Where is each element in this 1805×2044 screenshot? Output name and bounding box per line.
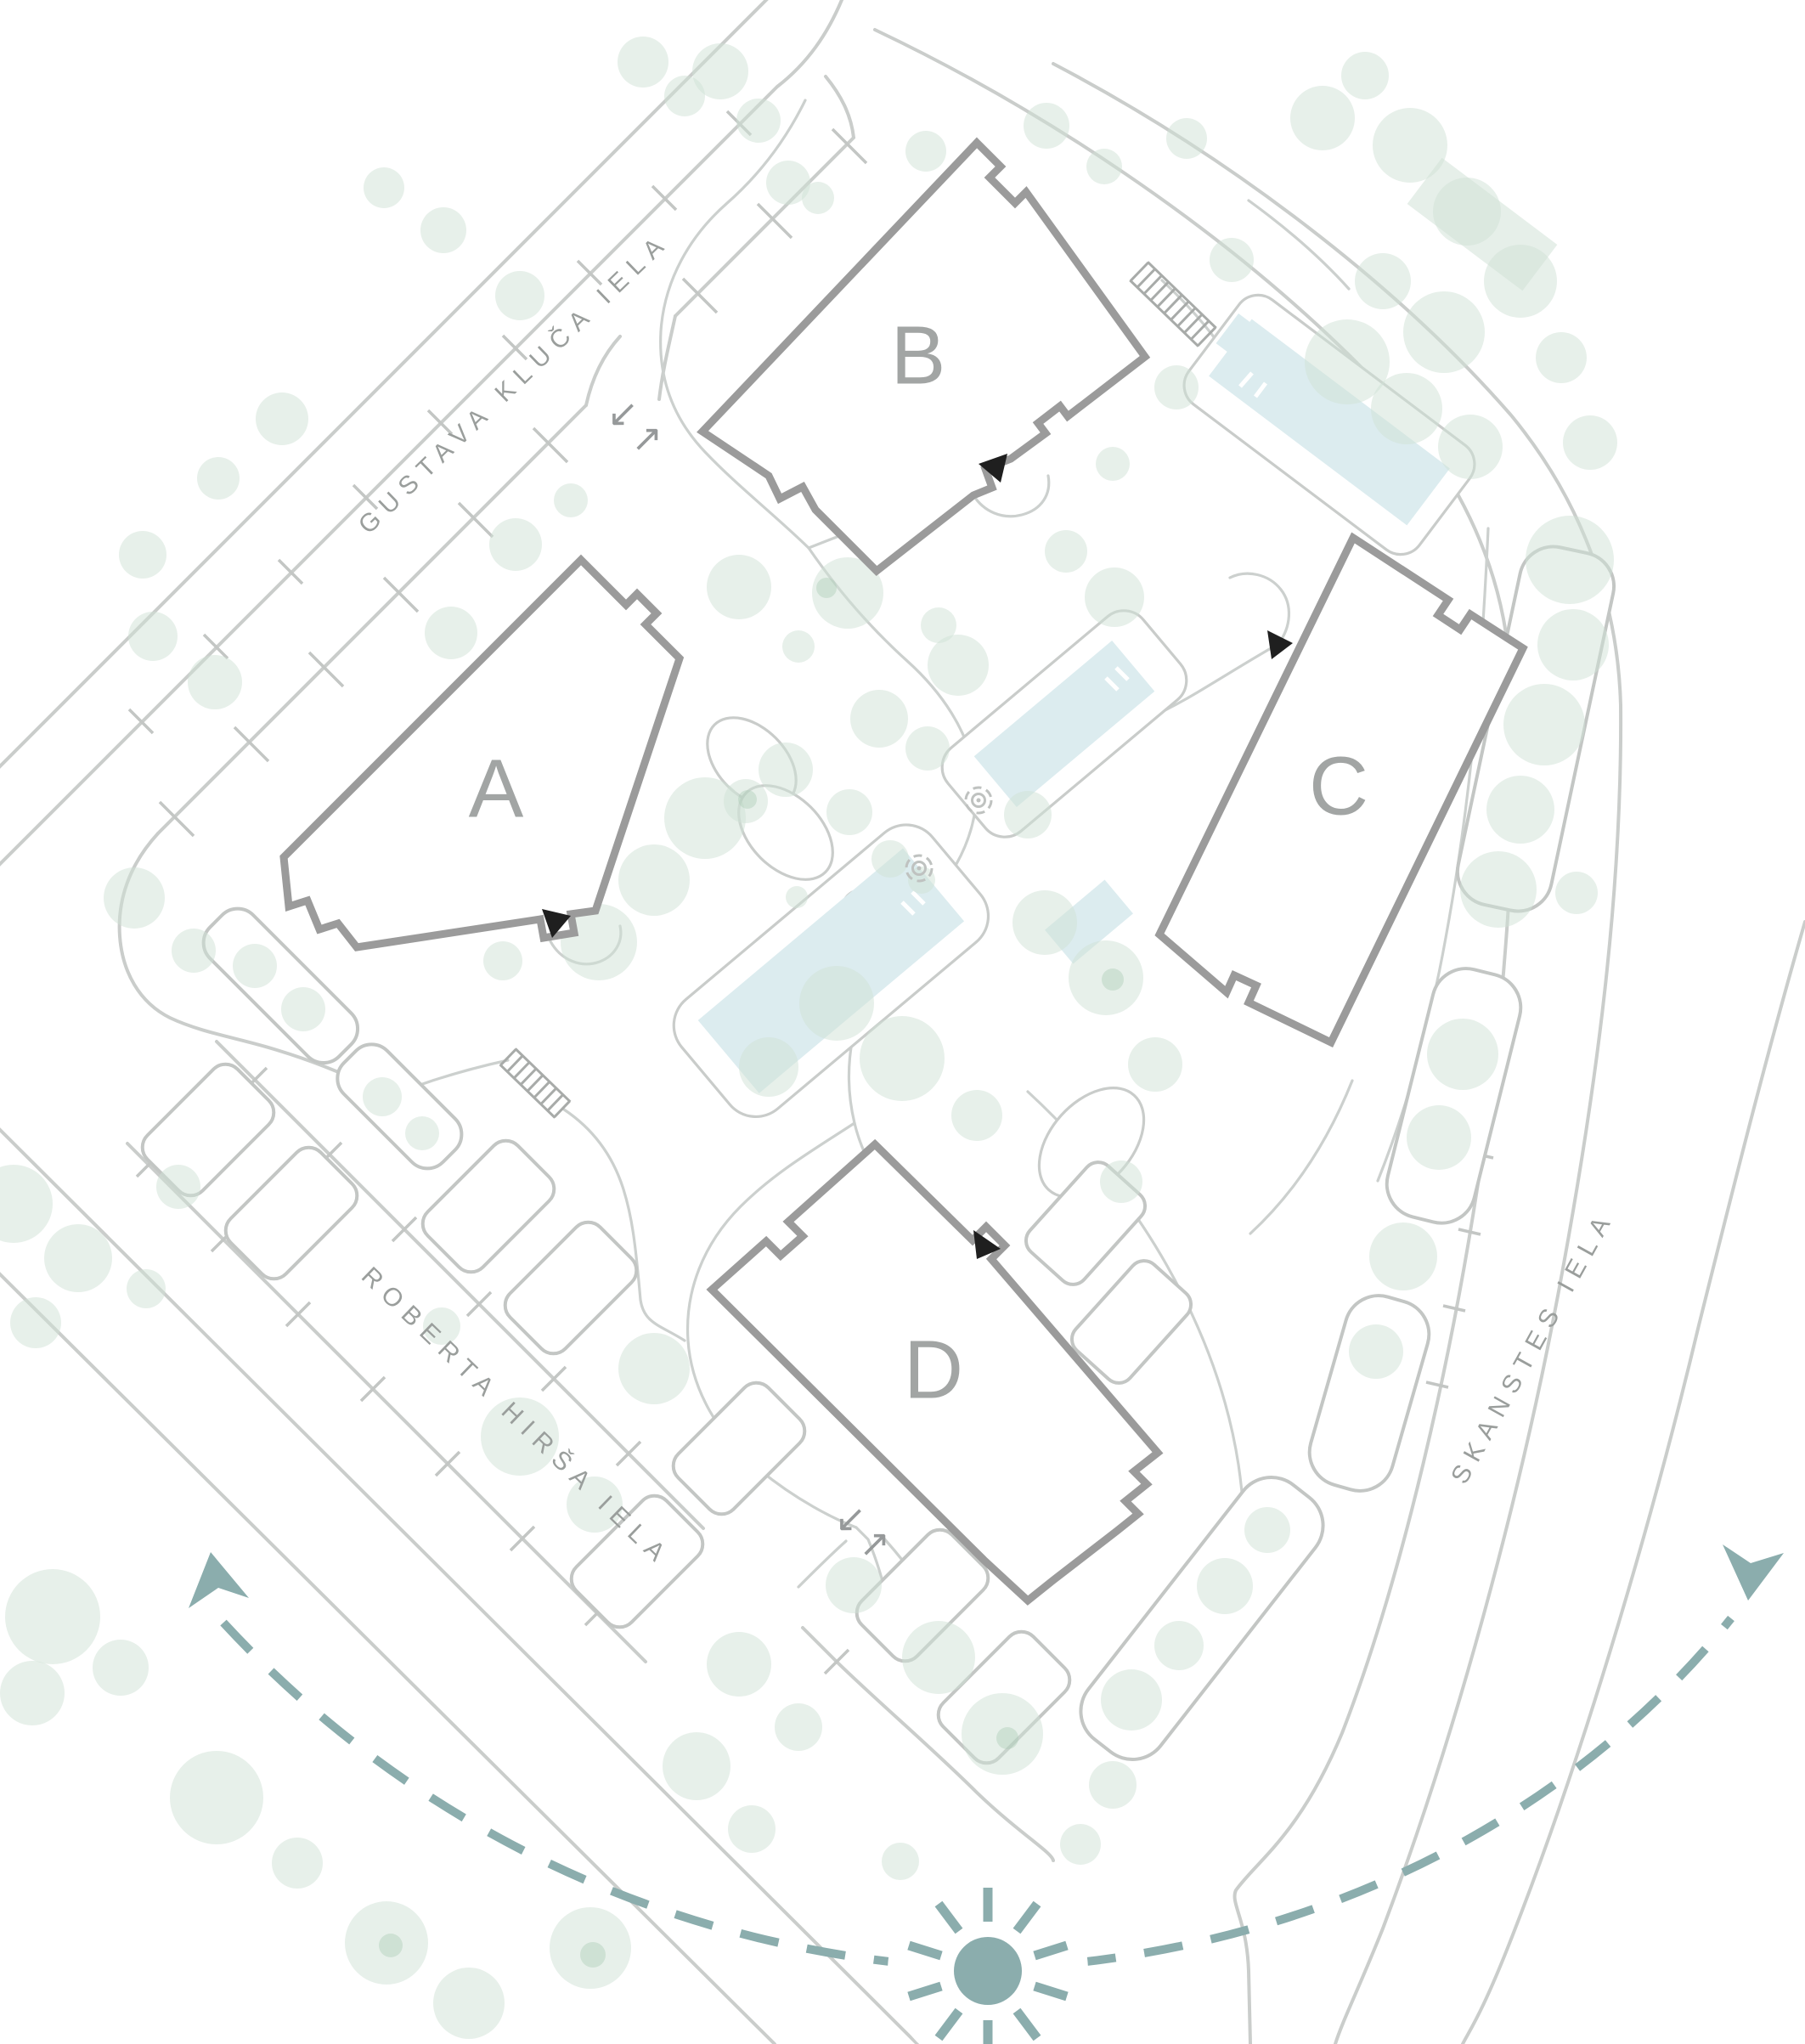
parking-tick <box>832 129 866 163</box>
tree <box>1373 108 1447 183</box>
tree <box>618 1333 690 1404</box>
tree <box>1086 149 1122 184</box>
tree <box>1197 1558 1253 1614</box>
tree <box>759 743 813 797</box>
tree <box>802 182 834 214</box>
stair-step <box>500 1049 516 1065</box>
tree <box>1341 52 1389 99</box>
tree <box>197 457 240 500</box>
sun-icon <box>954 1937 1022 2005</box>
tree <box>775 1703 822 1751</box>
tree <box>951 1090 1002 1141</box>
tree <box>850 690 908 748</box>
tree <box>1290 86 1355 150</box>
tree <box>1555 872 1598 914</box>
stair-step <box>541 1088 556 1104</box>
tree <box>104 867 165 929</box>
tree-accent <box>1102 968 1124 991</box>
tree <box>799 966 874 1041</box>
tree <box>1012 890 1077 955</box>
car <box>218 1140 364 1285</box>
tree <box>420 207 466 253</box>
tree <box>739 1037 798 1097</box>
building-b-label: B <box>891 309 948 402</box>
footpath-topright-2 <box>1249 200 1349 289</box>
planter <box>1301 1288 1437 1499</box>
tree <box>363 1077 402 1116</box>
fountain-center <box>977 799 981 803</box>
tree <box>905 131 946 172</box>
tree <box>736 99 781 143</box>
tree <box>860 1016 945 1101</box>
tree <box>1244 1507 1290 1553</box>
tree-accent <box>379 1934 403 1957</box>
tree <box>1349 1324 1403 1379</box>
parking-tick <box>758 204 792 238</box>
tree <box>281 987 325 1031</box>
parking-tick <box>683 279 717 313</box>
car <box>498 1215 643 1360</box>
tree <box>618 37 668 88</box>
stair-step <box>521 1069 536 1085</box>
tree <box>119 531 166 579</box>
tree <box>554 483 588 517</box>
tree-accent <box>816 578 837 598</box>
tree <box>93 1640 149 1696</box>
planter <box>1379 962 1527 1230</box>
tree <box>128 612 178 661</box>
tree <box>1045 530 1087 573</box>
tree <box>1403 291 1485 373</box>
tree <box>1503 684 1585 765</box>
stair-rail <box>1130 280 1199 347</box>
tree <box>826 789 872 835</box>
tree <box>1024 103 1069 149</box>
tree <box>489 518 542 571</box>
tree-accent <box>580 1942 606 1968</box>
stair-step <box>527 1076 543 1092</box>
ramp-arrows-south: ↓↑ <box>823 1494 903 1574</box>
tree <box>233 944 277 988</box>
tree <box>664 777 746 859</box>
site-plan: A B C D ↓↑ ↓↑ GUSTAVA KLUČA IELA ROBERTA <box>0 0 1805 2044</box>
tree <box>1371 373 1442 444</box>
tree <box>663 1732 730 1800</box>
tree <box>1486 776 1554 844</box>
tree <box>618 844 690 916</box>
parking-tick <box>384 578 418 612</box>
building-c-label: C <box>1309 740 1370 833</box>
tree <box>188 655 242 709</box>
stair-step <box>555 1101 570 1117</box>
ramp-arrows-north: ↓↑ <box>595 389 675 469</box>
tree <box>1154 1621 1204 1670</box>
tree <box>1089 1761 1137 1809</box>
driveway-flare-east <box>586 336 620 405</box>
stair-step <box>514 1062 529 1078</box>
road-line-skanstes-far <box>1463 922 1805 2044</box>
parking-tick <box>309 652 343 686</box>
stair-step <box>548 1095 563 1111</box>
tree <box>1100 1160 1142 1203</box>
sun-path-arrow-east <box>1723 1544 1784 1601</box>
tree <box>10 1297 61 1348</box>
tree <box>495 271 544 320</box>
tree <box>127 1269 166 1308</box>
tree <box>1128 1037 1182 1092</box>
stairs-icon-north <box>1130 262 1216 346</box>
tree <box>433 1968 505 2039</box>
tree <box>425 607 477 659</box>
tree <box>272 1838 323 1889</box>
car <box>666 1375 811 1521</box>
parking-tick <box>160 802 194 836</box>
stairs-icon-west <box>500 1048 571 1117</box>
tree <box>44 1224 112 1292</box>
tree <box>1085 567 1144 627</box>
tree <box>1563 415 1617 470</box>
tree <box>1484 245 1557 318</box>
building-a-label: A <box>469 743 526 835</box>
tree <box>1407 1105 1471 1170</box>
tree <box>707 555 771 619</box>
tree <box>1369 1222 1437 1290</box>
tree <box>782 630 815 663</box>
parking-tick <box>459 503 493 537</box>
sun-path-arrow-west <box>189 1552 249 1608</box>
tree <box>1166 118 1207 159</box>
tree <box>170 1751 263 1844</box>
entrance-marker-c <box>1267 630 1293 659</box>
tree <box>156 1165 200 1209</box>
stair-rail <box>1148 262 1216 328</box>
tree <box>405 1116 439 1150</box>
tree <box>1355 253 1411 309</box>
tree <box>1004 791 1052 838</box>
parking-tick <box>1443 1306 1465 1311</box>
tree <box>1210 238 1254 282</box>
tree-accent <box>738 790 757 809</box>
tree <box>1460 851 1537 928</box>
tree <box>1438 415 1503 479</box>
tree <box>902 1621 975 1694</box>
tree <box>1060 1824 1101 1865</box>
tree <box>0 1661 65 1725</box>
stair-step <box>534 1081 550 1098</box>
fountain-center <box>917 867 922 871</box>
tree <box>728 1805 776 1853</box>
tree <box>483 941 522 980</box>
tree <box>5 1569 100 1664</box>
tree <box>1536 332 1587 383</box>
tree <box>692 43 748 99</box>
tree <box>707 1632 771 1697</box>
tree <box>882 1843 919 1880</box>
parking-tick <box>1426 1382 1448 1387</box>
tree <box>1526 516 1614 604</box>
tree <box>905 726 950 771</box>
planter <box>329 1036 471 1178</box>
tree-accent <box>996 1727 1018 1749</box>
tree <box>1096 447 1130 481</box>
parking-tick <box>234 727 268 761</box>
tree <box>928 635 989 696</box>
footpath-south-of-c <box>1250 1081 1352 1234</box>
tree <box>364 167 404 208</box>
tree <box>871 840 909 878</box>
tree <box>1433 178 1501 246</box>
tree <box>1101 1669 1162 1731</box>
street-label-skanstes: SKANSTES IELA <box>1446 1205 1620 1488</box>
tree <box>1537 609 1609 680</box>
tree <box>786 886 808 908</box>
building-d-label: D <box>904 1324 965 1416</box>
parking-tick <box>533 428 567 462</box>
tree <box>172 929 216 973</box>
tree <box>1154 365 1199 409</box>
site-plan-canvas: A B C D ↓↑ ↓↑ GUSTAVA KLUČA IELA ROBERTA <box>0 0 1805 2044</box>
tree <box>256 392 308 445</box>
tree <box>1427 1019 1498 1090</box>
footpath-c-entrance-loop <box>1230 573 1289 644</box>
stair-step <box>507 1056 522 1072</box>
